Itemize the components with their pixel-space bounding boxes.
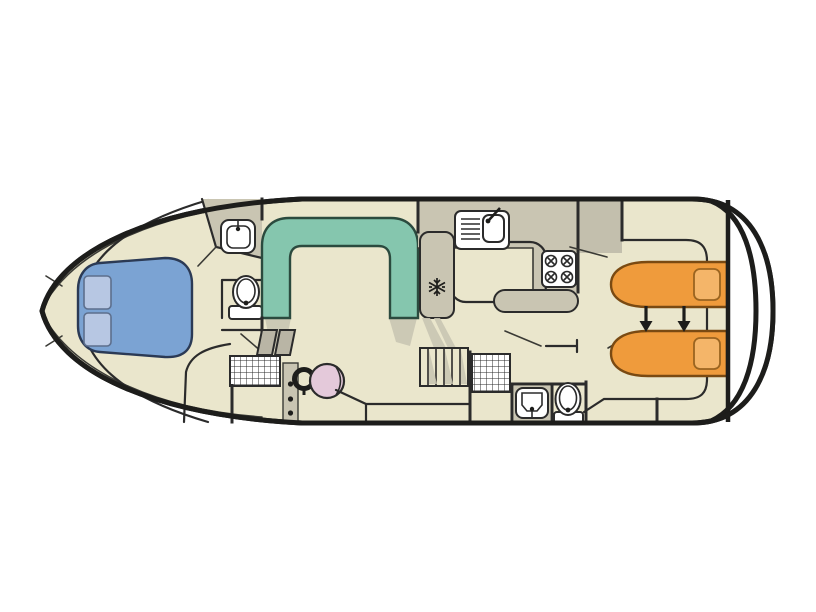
helm-seat bbox=[310, 364, 344, 398]
shower-grating bbox=[472, 354, 510, 392]
wardrobe bbox=[578, 200, 622, 253]
aft-deck bbox=[728, 201, 771, 421]
toilet-icon bbox=[554, 383, 583, 423]
boat-deck-plan bbox=[0, 0, 816, 612]
floor-grating bbox=[230, 356, 280, 386]
stove-icon bbox=[542, 251, 576, 287]
fridge bbox=[420, 232, 454, 318]
bow-cabin bbox=[78, 258, 192, 357]
washbasin-icon bbox=[516, 388, 548, 418]
bed-pillow bbox=[84, 313, 111, 346]
washbasin-icon bbox=[221, 220, 255, 253]
bed-pillow bbox=[694, 338, 720, 369]
sink-icon bbox=[455, 208, 509, 249]
deck-plan-svg bbox=[0, 0, 816, 612]
bed-pillow bbox=[694, 269, 720, 300]
companionway-stairs bbox=[420, 348, 468, 386]
counter-bar bbox=[494, 290, 578, 312]
bed-pillow bbox=[84, 276, 111, 309]
